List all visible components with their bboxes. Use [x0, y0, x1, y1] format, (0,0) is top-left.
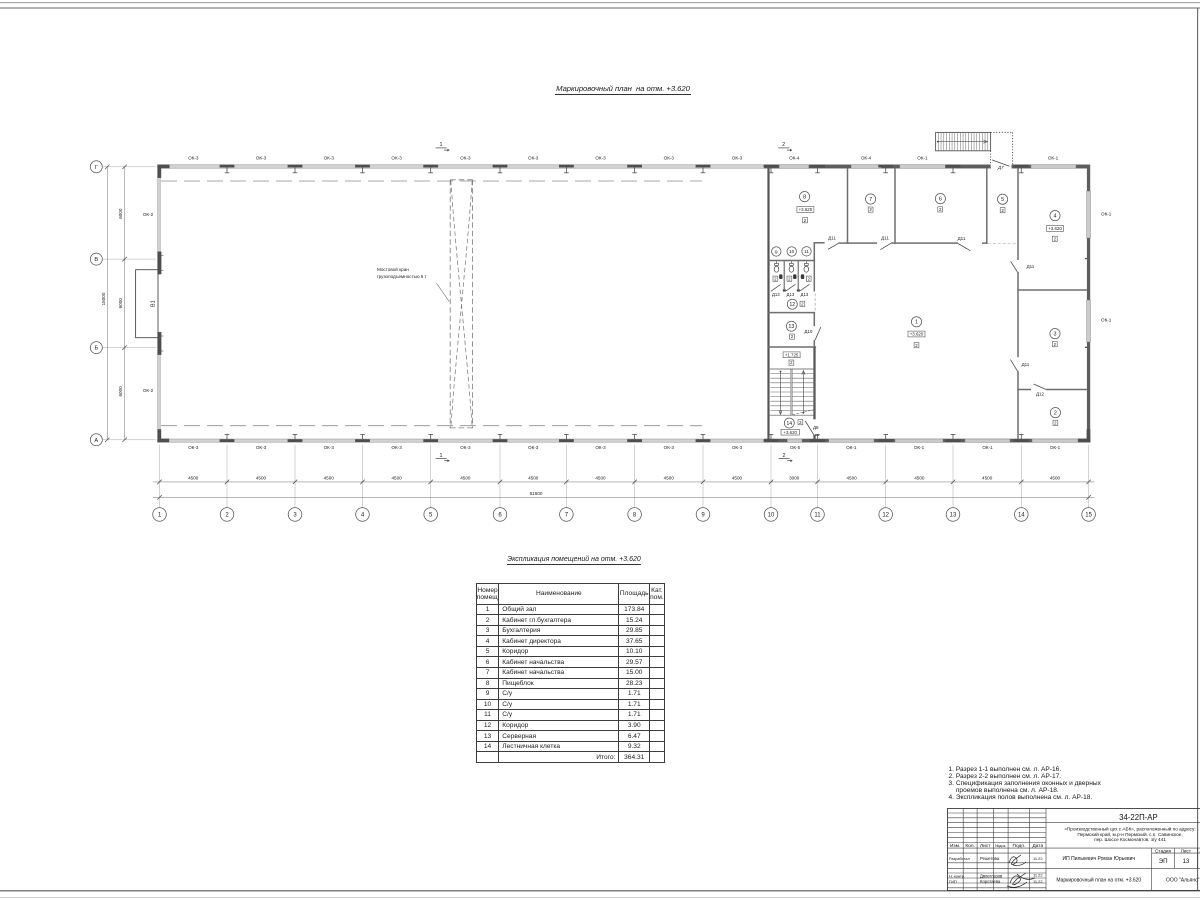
- svg-text:+3.620: +3.620: [910, 332, 924, 337]
- svg-text:14: 14: [787, 421, 793, 427]
- svg-text:«Производственный цех с АБК»,: «Производственный цех с АБК», расположен…: [1065, 825, 1196, 831]
- svg-text:Д11: Д11: [1027, 264, 1035, 269]
- svg-text:В: В: [94, 257, 98, 263]
- svg-text:ОК-3: ОК-3: [595, 156, 606, 161]
- svg-text:Лист: Лист: [1181, 848, 1192, 853]
- svg-text:ОК-3: ОК-3: [595, 445, 606, 450]
- svg-text:В1: В1: [151, 300, 157, 307]
- svg-text:ОК-1: ОК-1: [917, 156, 928, 161]
- svg-text:ОК-1: ОК-1: [914, 445, 925, 450]
- svg-text:ОК-3: ОК-3: [732, 156, 743, 161]
- svg-text:ОК-3: ОК-3: [324, 156, 335, 161]
- svg-text:34-22П-АР: 34-22П-АР: [1119, 813, 1158, 822]
- svg-text:8: 8: [803, 195, 806, 201]
- svg-text:11.22: 11.22: [1033, 873, 1042, 878]
- svg-text:3000: 3000: [789, 476, 800, 481]
- svg-text:5: 5: [1001, 197, 1004, 203]
- svg-text:ОК-3: ОК-3: [528, 445, 539, 450]
- svg-text:4500: 4500: [595, 476, 606, 481]
- svg-text:ОК-4: ОК-4: [789, 156, 800, 161]
- svg-text:4500: 4500: [256, 476, 267, 481]
- svg-text:ОК-4: ОК-4: [861, 156, 872, 161]
- svg-text:4500: 4500: [391, 476, 402, 481]
- svg-text:4500: 4500: [982, 476, 993, 481]
- svg-text:ОК-5: ОК-5: [790, 445, 801, 450]
- svg-text:грузоподъемностью 5 т: грузоподъемностью 5 т: [377, 274, 428, 279]
- svg-text:2: 2: [783, 453, 786, 459]
- svg-text:1: 1: [915, 320, 918, 326]
- svg-text:Мостовой кран: Мостовой кран: [377, 266, 409, 272]
- svg-text:Маркировочный план на отм. +3.: Маркировочный план на отм. +3.620: [1057, 876, 1142, 883]
- svg-text:пер. Шоссе Космонавтов, з/у 44: пер. Шоссе Космонавтов, з/у 441: [1094, 837, 1166, 842]
- svg-text:ОК-1: ОК-1: [1050, 445, 1061, 450]
- svg-text:4500: 4500: [664, 476, 675, 481]
- svg-text:Д8: Д8: [813, 425, 819, 430]
- svg-text:Д13: Д13: [772, 292, 780, 297]
- svg-text:4: 4: [1054, 214, 1057, 220]
- svg-text:7: 7: [869, 197, 872, 203]
- svg-text:Кол.: Кол.: [966, 843, 976, 849]
- svg-text:ОК-1: ОК-1: [1101, 318, 1112, 323]
- svg-text:Д11: Д11: [881, 236, 889, 241]
- svg-text:6000: 6000: [118, 386, 123, 397]
- svg-text:9: 9: [775, 249, 778, 255]
- svg-text:Н. контр.: Н. контр.: [949, 873, 965, 878]
- svg-text:Д11: Д11: [1022, 362, 1030, 367]
- svg-text:15: 15: [1085, 513, 1092, 519]
- svg-text:ОК-3: ОК-3: [256, 445, 267, 450]
- svg-text:+3.620: +3.620: [1048, 226, 1062, 231]
- svg-text:ОК-3: ОК-3: [528, 156, 539, 161]
- svg-text:ОК-2: ОК-2: [143, 388, 154, 393]
- svg-text:6000: 6000: [118, 298, 123, 309]
- svg-text:4500: 4500: [1050, 476, 1061, 481]
- svg-text:ОК-3: ОК-3: [664, 445, 675, 450]
- svg-text:ООО "Альянс": ООО "Альянс": [1166, 877, 1200, 883]
- svg-text:ОК-3: ОК-3: [188, 156, 199, 161]
- svg-text:ОК-1: ОК-1: [1101, 212, 1112, 217]
- svg-text:14: 14: [1018, 513, 1025, 519]
- svg-text:11.22: 11.22: [1033, 879, 1042, 884]
- svg-text:Д12: Д12: [1036, 392, 1045, 397]
- svg-text:4500: 4500: [732, 476, 743, 481]
- svg-text:+3.620: +3.620: [783, 430, 797, 435]
- svg-text:Г: Г: [95, 165, 98, 171]
- svg-text:12: 12: [882, 513, 889, 519]
- svg-text:ОК-3: ОК-3: [256, 156, 267, 161]
- svg-text:6000: 6000: [118, 208, 123, 219]
- svg-text:ОК-3: ОК-3: [732, 445, 743, 450]
- svg-text:11: 11: [804, 249, 809, 254]
- svg-text:13: 13: [1183, 858, 1190, 865]
- svg-text:А: А: [94, 438, 98, 444]
- svg-text:ОК-3: ОК-3: [324, 445, 335, 450]
- svg-text:ОК-3: ОК-3: [391, 445, 402, 450]
- svg-text:4500: 4500: [528, 476, 539, 481]
- svg-text:4500: 4500: [460, 476, 471, 481]
- svg-text:Д10: Д10: [804, 329, 813, 334]
- svg-text:Д13: Д13: [801, 292, 809, 297]
- svg-text:Разработал: Разработал: [949, 857, 970, 861]
- svg-text:ОК-3: ОК-3: [391, 156, 402, 161]
- svg-text:№док.: №док.: [995, 843, 1006, 848]
- svg-text:12: 12: [790, 302, 796, 308]
- svg-text:Д13: Д13: [787, 292, 795, 297]
- svg-text:11: 11: [814, 513, 821, 519]
- svg-text:ИП Пилькевич Роман Юрьевич: ИП Пилькевич Роман Юрьевич: [1063, 856, 1136, 862]
- svg-text:Д11: Д11: [958, 236, 966, 241]
- svg-text:4500: 4500: [846, 476, 857, 481]
- svg-text:11.22: 11.22: [1033, 856, 1042, 861]
- svg-text:13: 13: [950, 513, 957, 519]
- svg-text:4500: 4500: [188, 476, 199, 481]
- svg-text:ОК-2: ОК-2: [143, 212, 154, 217]
- svg-text:Дата: Дата: [1033, 843, 1044, 849]
- svg-text:2: 2: [1054, 411, 1057, 417]
- svg-text:ОК-1: ОК-1: [846, 445, 857, 450]
- svg-text:Д7: Д7: [997, 165, 1004, 170]
- svg-text:2: 2: [782, 142, 785, 148]
- svg-text:ОК-3: ОК-3: [460, 156, 471, 161]
- svg-text:Пермский край, м.р-н Пермский,: Пермский край, м.р-н Пермский, с.п. Сави…: [1078, 831, 1183, 837]
- svg-text:Коротаева: Коротаева: [980, 879, 1001, 884]
- svg-text:+1.725: +1.725: [785, 352, 799, 357]
- svg-text:10: 10: [768, 513, 775, 519]
- svg-text:Б: Б: [94, 346, 98, 352]
- svg-text:Д11: Д11: [828, 236, 836, 241]
- svg-text:Стадия: Стадия: [1155, 848, 1171, 853]
- svg-text:13: 13: [788, 324, 794, 330]
- svg-text:ОК-1: ОК-1: [1048, 156, 1059, 161]
- svg-text:+3.620: +3.620: [799, 207, 813, 212]
- svg-text:3: 3: [1054, 332, 1057, 338]
- svg-text:4500: 4500: [324, 476, 335, 481]
- svg-text:6: 6: [939, 197, 942, 203]
- svg-text:ЭП: ЭП: [1159, 858, 1168, 865]
- svg-text:10: 10: [789, 249, 795, 254]
- svg-text:ОК-3: ОК-3: [460, 445, 471, 450]
- svg-text:Решетова: Решетова: [980, 856, 1000, 861]
- svg-text:ОК-1: ОК-1: [982, 445, 993, 450]
- svg-text:4500: 4500: [914, 476, 925, 481]
- svg-text:1: 1: [440, 142, 443, 148]
- svg-text:1: 1: [440, 453, 443, 459]
- svg-text:ОК-3: ОК-3: [664, 156, 675, 161]
- svg-text:ОК-3: ОК-3: [188, 445, 199, 450]
- svg-text:61500: 61500: [530, 491, 543, 496]
- svg-text:Лист: Лист: [980, 843, 991, 849]
- svg-text:Двоеглазов: Двоеглазов: [980, 873, 1003, 878]
- svg-text:ГИП: ГИП: [949, 879, 957, 884]
- svg-text:18000: 18000: [101, 292, 106, 305]
- svg-text:Изм.: Изм.: [950, 843, 960, 849]
- svg-text:Подп.: Подп.: [1013, 843, 1026, 849]
